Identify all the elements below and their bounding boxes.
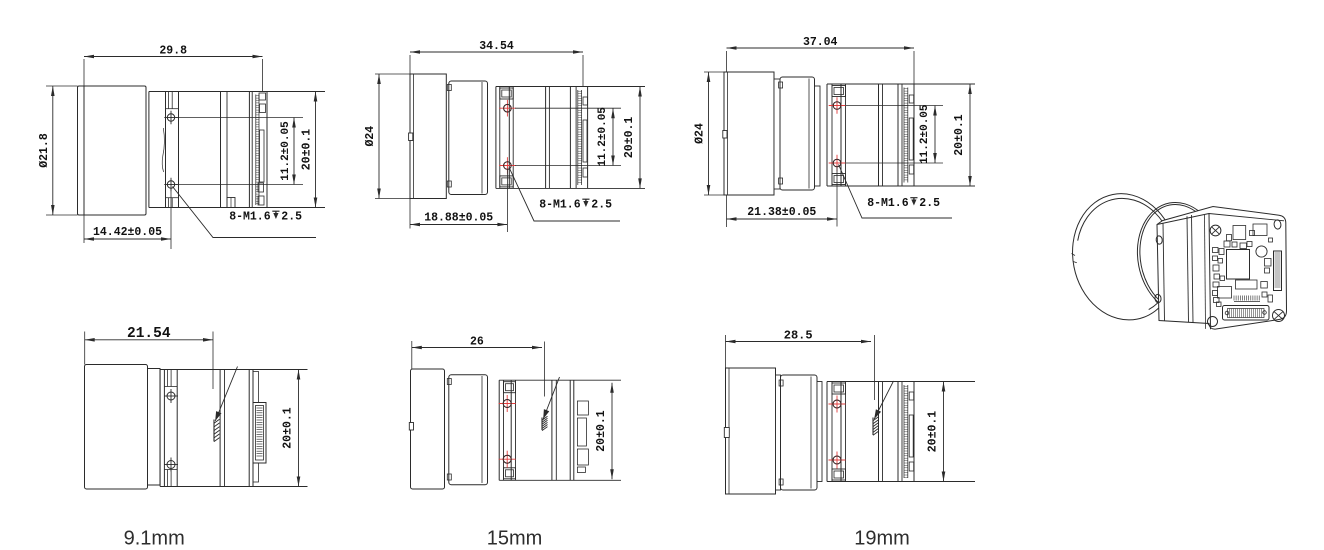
svg-text:20±0.1: 20±0.1: [953, 114, 966, 156]
svg-text:15mm: 15mm: [487, 528, 543, 550]
svg-text:21.54: 21.54: [127, 326, 171, 342]
svg-text:20±0.1: 20±0.1: [927, 411, 940, 453]
svg-text:14.42±0.05: 14.42±0.05: [93, 226, 162, 239]
svg-text:11.2±0.05: 11.2±0.05: [280, 121, 292, 181]
svg-text:Ø21.8: Ø21.8: [38, 133, 51, 168]
svg-text:18.88±0.05: 18.88±0.05: [424, 212, 493, 225]
svg-text:Ø24: Ø24: [364, 126, 377, 147]
svg-text:19mm: 19mm: [854, 528, 910, 550]
svg-text:20±0.1: 20±0.1: [623, 117, 636, 159]
svg-text:37.04: 37.04: [803, 36, 838, 49]
svg-text:8-M1.6: 8-M1.6: [229, 211, 271, 224]
svg-text:29.8: 29.8: [159, 45, 187, 58]
svg-text:8-M1.6: 8-M1.6: [867, 197, 909, 210]
svg-text:2.5: 2.5: [281, 211, 302, 224]
svg-text:2.5: 2.5: [591, 199, 612, 212]
svg-text:Ø24: Ø24: [694, 123, 707, 144]
svg-text:26: 26: [470, 336, 484, 349]
svg-text:11.2±0.05: 11.2±0.05: [919, 104, 931, 164]
svg-text:28.5: 28.5: [784, 329, 813, 343]
svg-text:9.1mm: 9.1mm: [124, 528, 185, 550]
svg-text:20±0.1: 20±0.1: [595, 410, 608, 452]
svg-text:21.38±0.05: 21.38±0.05: [747, 206, 816, 219]
svg-text:20±0.1: 20±0.1: [282, 407, 295, 449]
svg-text:20±0.1: 20±0.1: [301, 129, 314, 171]
svg-text:8-M1.6: 8-M1.6: [539, 199, 581, 212]
svg-text:2.5: 2.5: [919, 197, 940, 210]
svg-text:11.2±0.05: 11.2±0.05: [597, 107, 609, 167]
svg-text:34.54: 34.54: [479, 40, 514, 53]
